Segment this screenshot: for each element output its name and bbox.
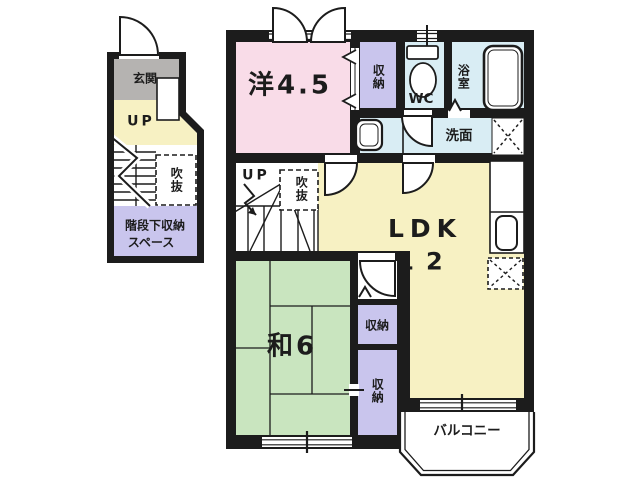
ldk-size-label: 12: [397, 249, 454, 274]
floor-plan: 玄関 UP 吹抜 階段下収納 スペース 洋4.5 収納 WC 浴室 洗面 LDK…: [0, 0, 640, 480]
western-room-label: 洋4.5: [248, 72, 332, 99]
kitchen-sink-icon: [496, 216, 517, 250]
under-stair-storage-label-1: 階段下収納: [125, 220, 185, 233]
closet-lower-label: 収納: [371, 378, 384, 404]
ldk-label: LDK: [388, 216, 462, 242]
wc-label: WC: [409, 92, 434, 106]
toilet-tank-icon: [407, 46, 438, 59]
japanese-room-label: 和6: [267, 333, 317, 360]
under-stair-storage-label-2: スペース: [128, 237, 175, 250]
entrance-label: 玄関: [133, 73, 157, 86]
main-void-label: 吹抜: [295, 176, 308, 202]
bathtub-icon: [484, 46, 522, 110]
western-closet-label: 収納: [372, 64, 385, 90]
annex-void-label: 吹抜: [170, 167, 183, 193]
washroom-label: 洗面: [446, 129, 473, 143]
bathroom-label: 浴室: [457, 64, 470, 90]
main-up-label: UP: [242, 169, 270, 184]
annex-up-label: UP: [127, 115, 155, 130]
closet-upper-label: 収納: [365, 320, 389, 333]
balcony-outline: [400, 412, 534, 475]
balcony-label: バルコニー: [433, 424, 500, 438]
shoe-cabinet: [157, 78, 179, 120]
